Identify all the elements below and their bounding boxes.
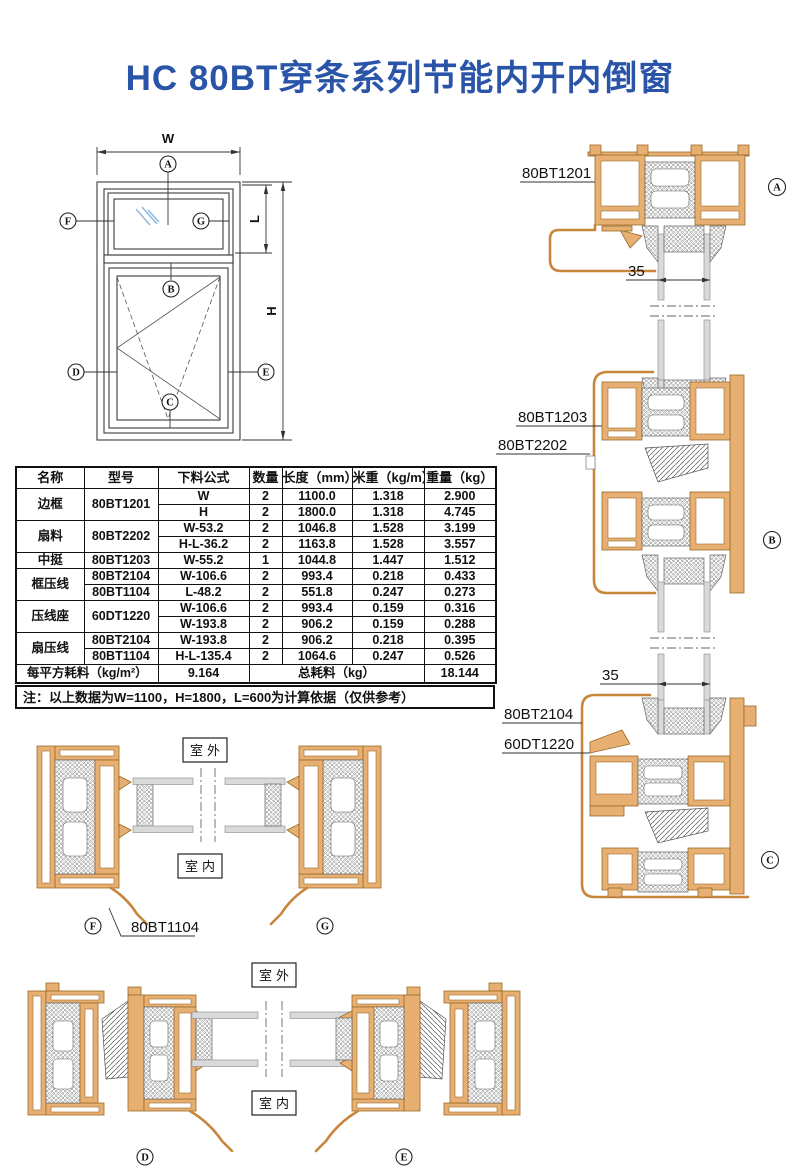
table-row: 扇压线 80BT2104 W-193.8 2 906.2 0.218 0.395 — [16, 633, 496, 649]
svg-text:C: C — [166, 398, 174, 409]
cell-formula: W-106.6 — [158, 569, 249, 585]
dim-glass-c: 35 — [600, 667, 710, 686]
section-marker-a: A — [160, 156, 176, 172]
svg-text:W: W — [162, 131, 175, 146]
cell-formula: W-53.2 — [158, 521, 249, 537]
section-marker-e: E — [258, 364, 274, 380]
section-marker-b-detail: B — [764, 532, 781, 549]
svg-text:室外: 室外 — [190, 743, 224, 758]
dim-glass-a: 35 — [626, 263, 710, 282]
svg-text:35: 35 — [628, 263, 645, 280]
cell-meter-weight: 0.247 — [352, 649, 424, 665]
cell-length: 1100.0 — [282, 489, 352, 505]
cell-meter-weight: 1.528 — [352, 521, 424, 537]
cell-qty: 2 — [249, 569, 282, 585]
cell-model: 80BT1104 — [84, 649, 158, 665]
cell-length: 1064.6 — [282, 649, 352, 665]
header-meter-weight: 米重（kg/m） — [352, 467, 424, 489]
table-note: 注：以上数据为W=1100，H=1800，L=600为计算依据（仅供参考） — [15, 685, 495, 709]
cell-name: 边框 — [16, 489, 84, 521]
cell-formula: H-L-135.4 — [158, 649, 249, 665]
cell-qty: 2 — [249, 649, 282, 665]
vertical-section-drawing: 35 80BT1201 A — [490, 130, 800, 920]
window-elevation-drawing: W L H A F G B D — [40, 125, 300, 455]
section-b-profile: 80BT1203 80BT2202 B — [496, 372, 781, 700]
table-row: 压线座 60DT1220 W-106.6 2 993.4 0.159 0.316 — [16, 601, 496, 617]
horizontal-section-fg-drawing: 室外 室内 F G 80BT1104 — [15, 730, 435, 945]
cell-name: 框压线 — [16, 569, 84, 601]
section-a-profile: 35 80BT1201 A — [520, 145, 786, 380]
section-marker-g: G — [193, 213, 209, 229]
datasheet-page: HC 80BT穿条系列节能内开内倒窗 W — [0, 0, 800, 1176]
svg-text:E: E — [400, 1153, 407, 1164]
cell-name: 中挺 — [16, 553, 84, 569]
cell-length: 1044.8 — [282, 553, 352, 569]
cell-meter-weight: 1.447 — [352, 553, 424, 569]
cell-weight: 0.526 — [424, 649, 496, 665]
svg-text:E: E — [262, 368, 269, 379]
cell-weight: 0.316 — [424, 601, 496, 617]
cell-weight: 3.199 — [424, 521, 496, 537]
section-marker-a-detail: A — [769, 179, 786, 196]
section-marker-f-detail: F — [85, 918, 101, 934]
cell-formula: L-48.2 — [158, 585, 249, 601]
cutting-list-table: 名称 型号 下料公式 数量 长度（mm） 米重（kg/m） 重量（kg） 边框 … — [15, 466, 497, 684]
cell-weight: 0.288 — [424, 617, 496, 633]
cell-qty: 2 — [249, 505, 282, 521]
profile-label-60dt1220: 60DT1220 — [504, 736, 574, 753]
per-sqm-label: 每平方耗料（kg/m²） — [16, 665, 158, 683]
cell-meter-weight: 0.218 — [352, 633, 424, 649]
page-title: HC 80BT穿条系列节能内开内倒窗 — [0, 50, 800, 101]
cell-formula: W-193.8 — [158, 617, 249, 633]
cell-weight: 0.395 — [424, 633, 496, 649]
svg-text:D: D — [141, 1153, 149, 1164]
cell-name: 压线座 — [16, 601, 84, 633]
cell-formula: H — [158, 505, 249, 521]
cell-weight: 0.433 — [424, 569, 496, 585]
cell-model: 80BT2104 — [84, 569, 158, 585]
cell-qty: 2 — [249, 537, 282, 553]
cell-length: 906.2 — [282, 617, 352, 633]
section-marker-c: C — [162, 394, 178, 410]
cell-formula: W-193.8 — [158, 633, 249, 649]
cell-formula: W-55.2 — [158, 553, 249, 569]
frame-and-sash-profile — [28, 983, 232, 1151]
cell-length: 1163.8 — [282, 537, 352, 553]
cell-model: 80BT1104 — [84, 585, 158, 601]
cell-name: 扇料 — [16, 521, 84, 553]
cell-formula: W-106.6 — [158, 601, 249, 617]
svg-text:A: A — [773, 183, 781, 194]
svg-text:B: B — [167, 285, 174, 296]
svg-text:A: A — [164, 160, 172, 171]
cell-meter-weight: 0.159 — [352, 617, 424, 633]
svg-text:L: L — [247, 215, 262, 223]
indoor-label: 室内 — [252, 1091, 296, 1115]
svg-text:室内: 室内 — [185, 859, 219, 874]
svg-text:室外: 室外 — [259, 968, 293, 983]
cell-length: 906.2 — [282, 633, 352, 649]
horizontal-section-de-drawing: 室外 室内 D E — [10, 955, 580, 1173]
table-row: 中挺 80BT1203 W-55.2 1 1044.8 1.447 1.512 — [16, 553, 496, 569]
outdoor-label: 室外 — [183, 738, 227, 762]
jamb-profile — [37, 746, 153, 924]
cell-meter-weight: 1.318 — [352, 489, 424, 505]
profile-label-80bt1104: 80BT1104 — [131, 919, 199, 936]
cell-formula: H-L-36.2 — [158, 537, 249, 553]
cell-weight: 3.557 — [424, 537, 496, 553]
header-qty: 数量 — [249, 467, 282, 489]
cell-formula: W — [158, 489, 249, 505]
table-footer-row: 每平方耗料（kg/m²） 9.164 总耗料（kg） 18.144 — [16, 665, 496, 683]
cell-length: 1046.8 — [282, 521, 352, 537]
cell-qty: 2 — [249, 633, 282, 649]
total-value: 18.144 — [424, 665, 496, 683]
table-row: 80BT1104 H-L-135.4 2 1064.6 0.247 0.526 — [16, 649, 496, 665]
cell-qty: 2 — [249, 521, 282, 537]
cell-meter-weight: 0.218 — [352, 569, 424, 585]
cell-meter-weight: 0.159 — [352, 601, 424, 617]
table-row: 边框 80BT1201 W 2 1100.0 1.318 2.900 — [16, 489, 496, 505]
cell-qty: 2 — [249, 585, 282, 601]
profile-label-80bt2202: 80BT2202 — [498, 437, 567, 454]
cell-length: 993.4 — [282, 569, 352, 585]
svg-text:35: 35 — [602, 667, 619, 684]
cell-qty: 2 — [249, 601, 282, 617]
svg-text:C: C — [766, 856, 774, 867]
svg-text:D: D — [72, 368, 80, 379]
section-marker-b: B — [163, 281, 179, 297]
cell-model: 80BT2202 — [84, 521, 158, 553]
cell-model: 80BT1201 — [84, 489, 158, 521]
table-header-row: 名称 型号 下料公式 数量 长度（mm） 米重（kg/m） 重量（kg） — [16, 467, 496, 489]
svg-text:G: G — [321, 922, 329, 933]
cell-qty: 2 — [249, 617, 282, 633]
cell-model: 80BT2104 — [84, 633, 158, 649]
svg-text:H: H — [264, 306, 279, 315]
cell-length: 993.4 — [282, 601, 352, 617]
table-row: 框压线 80BT2104 W-106.6 2 993.4 0.218 0.433 — [16, 569, 496, 585]
per-sqm-value: 9.164 — [158, 665, 249, 683]
cell-weight: 2.900 — [424, 489, 496, 505]
section-marker-d-detail: D — [137, 1149, 153, 1165]
cell-length: 551.8 — [282, 585, 352, 601]
svg-text:G: G — [197, 217, 205, 228]
section-c-profile: 35 — [502, 667, 779, 897]
header-length: 长度（mm） — [282, 467, 352, 489]
svg-text:F: F — [65, 217, 71, 228]
glass-reflection-icon — [136, 207, 159, 225]
cell-meter-weight: 1.318 — [352, 505, 424, 521]
profile-label-80bt2104: 80BT2104 — [504, 706, 573, 723]
cell-model: 80BT1203 — [84, 553, 158, 569]
cell-weight: 1.512 — [424, 553, 496, 569]
header-formula: 下料公式 — [158, 467, 249, 489]
svg-text:B: B — [768, 536, 775, 547]
table-row: 80BT1104 L-48.2 2 551.8 0.247 0.273 — [16, 585, 496, 601]
indoor-label: 室内 — [178, 854, 222, 878]
svg-text:F: F — [90, 922, 96, 933]
cell-name: 扇压线 — [16, 633, 84, 665]
section-marker-f: F — [60, 213, 76, 229]
profile-label-80bt1203: 80BT1203 — [518, 409, 587, 426]
cell-weight: 4.745 — [424, 505, 496, 521]
cell-qty: 1 — [249, 553, 282, 569]
cell-qty: 2 — [249, 489, 282, 505]
section-marker-d: D — [68, 364, 84, 380]
total-label: 总耗料（kg） — [249, 665, 424, 683]
header-name: 名称 — [16, 467, 84, 489]
section-marker-e-detail: E — [396, 1149, 412, 1165]
cell-length: 1800.0 — [282, 505, 352, 521]
cell-model: 60DT1220 — [84, 601, 158, 633]
section-marker-g-detail: G — [317, 918, 333, 934]
cell-weight: 0.273 — [424, 585, 496, 601]
cell-meter-weight: 1.528 — [352, 537, 424, 553]
section-marker-c-detail: C — [762, 852, 779, 869]
svg-text:室内: 室内 — [259, 1096, 293, 1111]
header-weight: 重量（kg） — [424, 467, 496, 489]
outdoor-label: 室外 — [252, 963, 296, 987]
table-row: 扇料 80BT2202 W-53.2 2 1046.8 1.528 3.199 — [16, 521, 496, 537]
cell-meter-weight: 0.247 — [352, 585, 424, 601]
profile-label-80bt1201: 80BT1201 — [522, 165, 591, 182]
header-model: 型号 — [84, 467, 158, 489]
